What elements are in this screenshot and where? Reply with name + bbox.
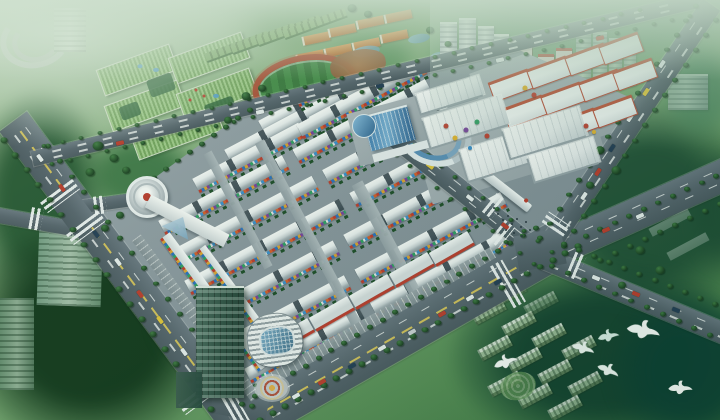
dove-silhouette [592, 357, 624, 384]
dove-bird [666, 379, 695, 397]
dove-bird [488, 349, 521, 376]
dove-bird [592, 357, 624, 384]
air-layer [0, 0, 720, 420]
dove-silhouette [666, 379, 695, 397]
dove-silhouette [594, 326, 622, 347]
dove-bird [621, 314, 665, 346]
dove-bird [568, 336, 599, 360]
aerial-rendering-scene [0, 0, 720, 420]
dove-silhouette [621, 314, 665, 346]
dove-silhouette [488, 349, 521, 376]
dove-bird [594, 326, 622, 347]
dove-silhouette [568, 336, 599, 360]
